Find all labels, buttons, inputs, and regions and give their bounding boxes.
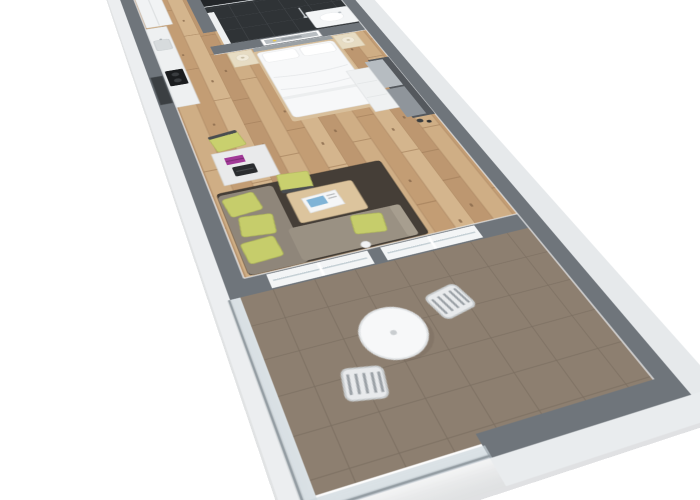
cushion xyxy=(238,213,276,237)
balcony-chair-left xyxy=(341,366,389,402)
floorplan-render-canvas xyxy=(0,0,700,500)
apartment-plan xyxy=(98,0,700,500)
cushion xyxy=(350,213,388,235)
